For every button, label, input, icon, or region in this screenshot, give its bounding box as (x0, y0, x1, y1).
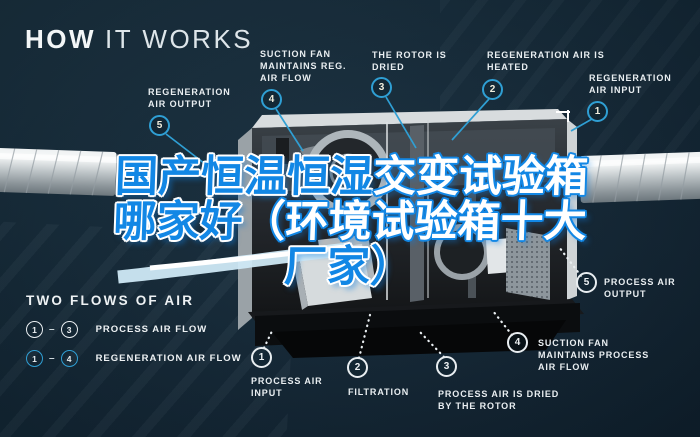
legend-dash: – (49, 324, 55, 335)
callout-number-2-bottom: 2 (347, 357, 368, 378)
callout-number-3-top: 3 (371, 77, 392, 98)
callout-label-process-air-input: PROCESS AIR INPUT (251, 375, 343, 399)
machine-body (238, 109, 584, 358)
legend-circle-from: 1 (26, 321, 43, 338)
callout-number-5-right: 5 (576, 272, 597, 293)
callout-number-1-top: 1 (587, 101, 608, 122)
callout-label-suction-fan-reg: SUCTION FAN MAINTAINS REG. AIR FLOW (260, 48, 356, 84)
callout-number-4-top: 4 (261, 89, 282, 110)
page-title-light: IT WORKS (105, 24, 253, 54)
legend-heading: TWO FLOWS OF AIR (26, 293, 242, 308)
legend-circle-from: 1 (26, 350, 43, 367)
legend-row-process: 1 – 3 PROCESS AIR FLOW (26, 321, 242, 338)
legend-label-regeneration-air-flow: REGENERATION AIR FLOW (96, 353, 242, 364)
right-duct (579, 152, 700, 203)
legend-row-regeneration: 1 – 4 REGENERATION AIR FLOW (26, 350, 242, 367)
legend-circle-to: 4 (61, 350, 78, 367)
left-duct (0, 148, 117, 196)
callout-label-process-air-output: PROCESS AIR OUTPUT (604, 276, 690, 300)
legend: TWO FLOWS OF AIR 1 – 3 PROCESS AIR FLOW … (26, 293, 242, 379)
legend-circle-to: 3 (61, 321, 78, 338)
callout-label-filtration: FILTRATION (348, 386, 440, 398)
callout-number-3-bottom: 3 (436, 356, 457, 377)
legend-label-process-air-flow: PROCESS AIR FLOW (96, 324, 208, 335)
infographic-stage: HOWIT WORKS REGENERATION AIR OUTPUT SUCT… (0, 0, 700, 437)
legend-dash: – (49, 353, 55, 364)
callout-label-rotor-dried: THE ROTOR IS DRIED (372, 49, 458, 73)
callout-label-regeneration-air-output: REGENERATION AIR OUTPUT (148, 86, 248, 110)
page-title-bold: HOW (25, 24, 96, 54)
callout-number-4-bottom: 4 (507, 332, 528, 353)
callout-number-2-top: 2 (482, 79, 503, 100)
callout-label-regeneration-air-heated: REGENERATION AIR IS HEATED (487, 49, 605, 73)
callout-label-process-air-dried: PROCESS AIR IS DRIED BY THE ROTOR (438, 388, 570, 412)
callout-label-regeneration-air-input: REGENERATION AIR INPUT (589, 72, 689, 96)
page-title: HOWIT WORKS (25, 24, 253, 55)
callout-number-1-bottom: 1 (251, 347, 272, 368)
callout-label-suction-fan-process: SUCTION FAN MAINTAINS PROCESS AIR FLOW (538, 337, 660, 373)
callout-number-5-left: 5 (149, 115, 170, 136)
